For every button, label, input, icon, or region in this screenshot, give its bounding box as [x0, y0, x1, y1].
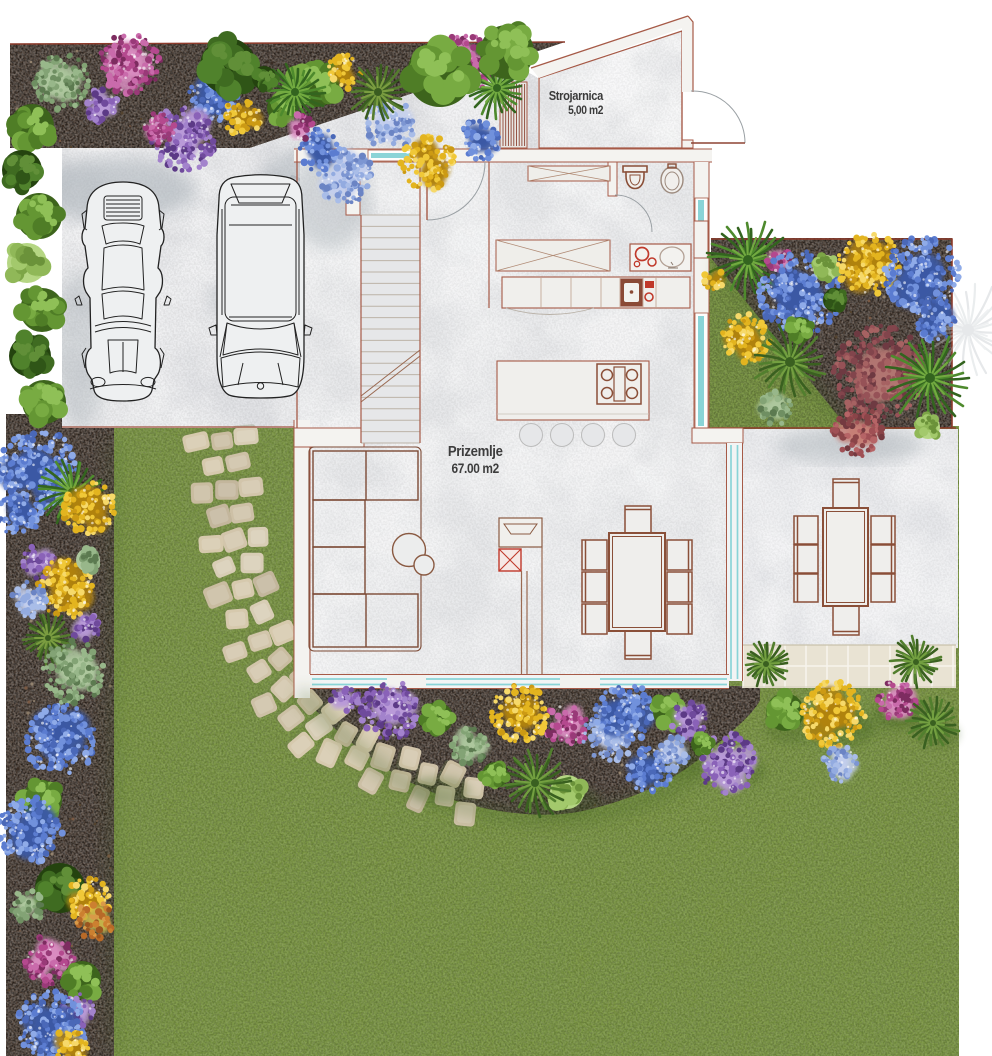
- svg-text:Prizemlje: Prizemlje: [448, 442, 503, 459]
- svg-text:Strojarnica: Strojarnica: [549, 88, 604, 103]
- svg-text:67.00 m2: 67.00 m2: [452, 460, 500, 476]
- svg-text:5,00 m2: 5,00 m2: [568, 104, 603, 117]
